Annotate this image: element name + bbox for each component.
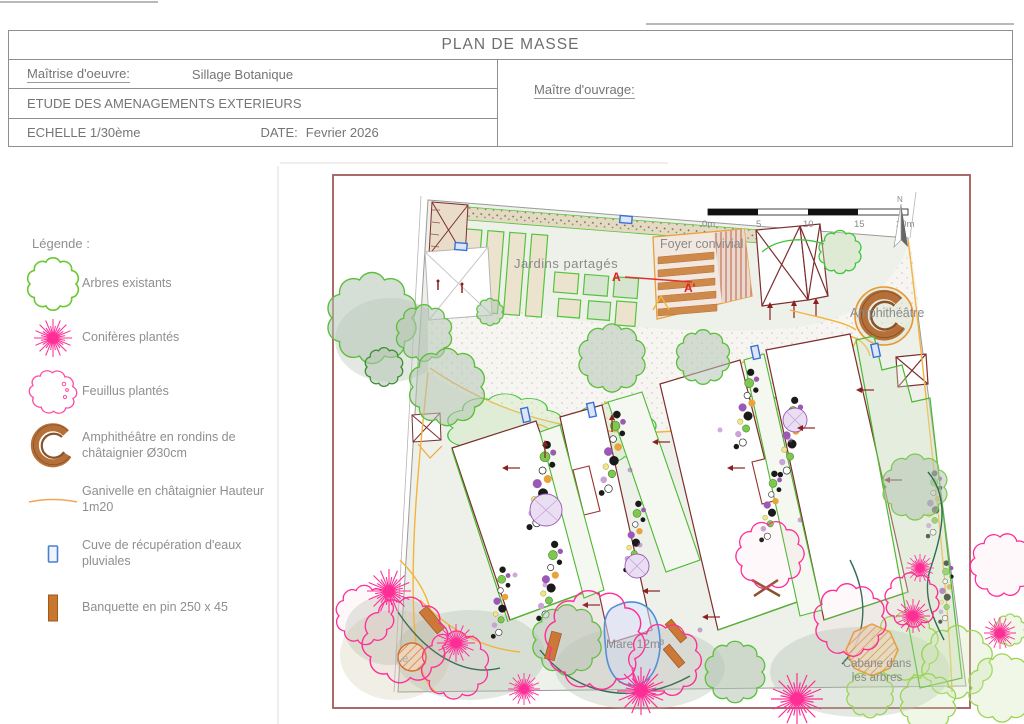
plan-de-masse-sheet: { "title_block": { "title": "PLAN DE MAS… — [0, 0, 1024, 724]
scale-tick-10: 10 — [803, 219, 814, 230]
label-bottom-left: Le — [396, 653, 408, 665]
north-label: N — [897, 195, 903, 204]
label-foyer-convivial: Foyer convivial — [660, 237, 743, 251]
label-jardins-partages: Jardins partagés — [514, 256, 618, 271]
label-cabane-line2: les arbres — [852, 672, 903, 684]
site-plan-drawing: A A' 0m 5 10 15 20m N Jardins partagés F… — [0, 0, 1024, 724]
label-amphitheatre: Amphithéâtre — [850, 306, 924, 320]
scale-tick-5: 5 — [756, 219, 761, 230]
label-cabane-line1: Cabane dans — [843, 658, 912, 670]
scale-tick-0: 0m — [702, 219, 715, 230]
section-marker-a-prime: A' — [684, 281, 696, 295]
label-mare: Mare 12m³ — [606, 637, 664, 651]
section-marker-a: A — [612, 270, 621, 284]
scale-tick-15: 15 — [854, 219, 865, 230]
